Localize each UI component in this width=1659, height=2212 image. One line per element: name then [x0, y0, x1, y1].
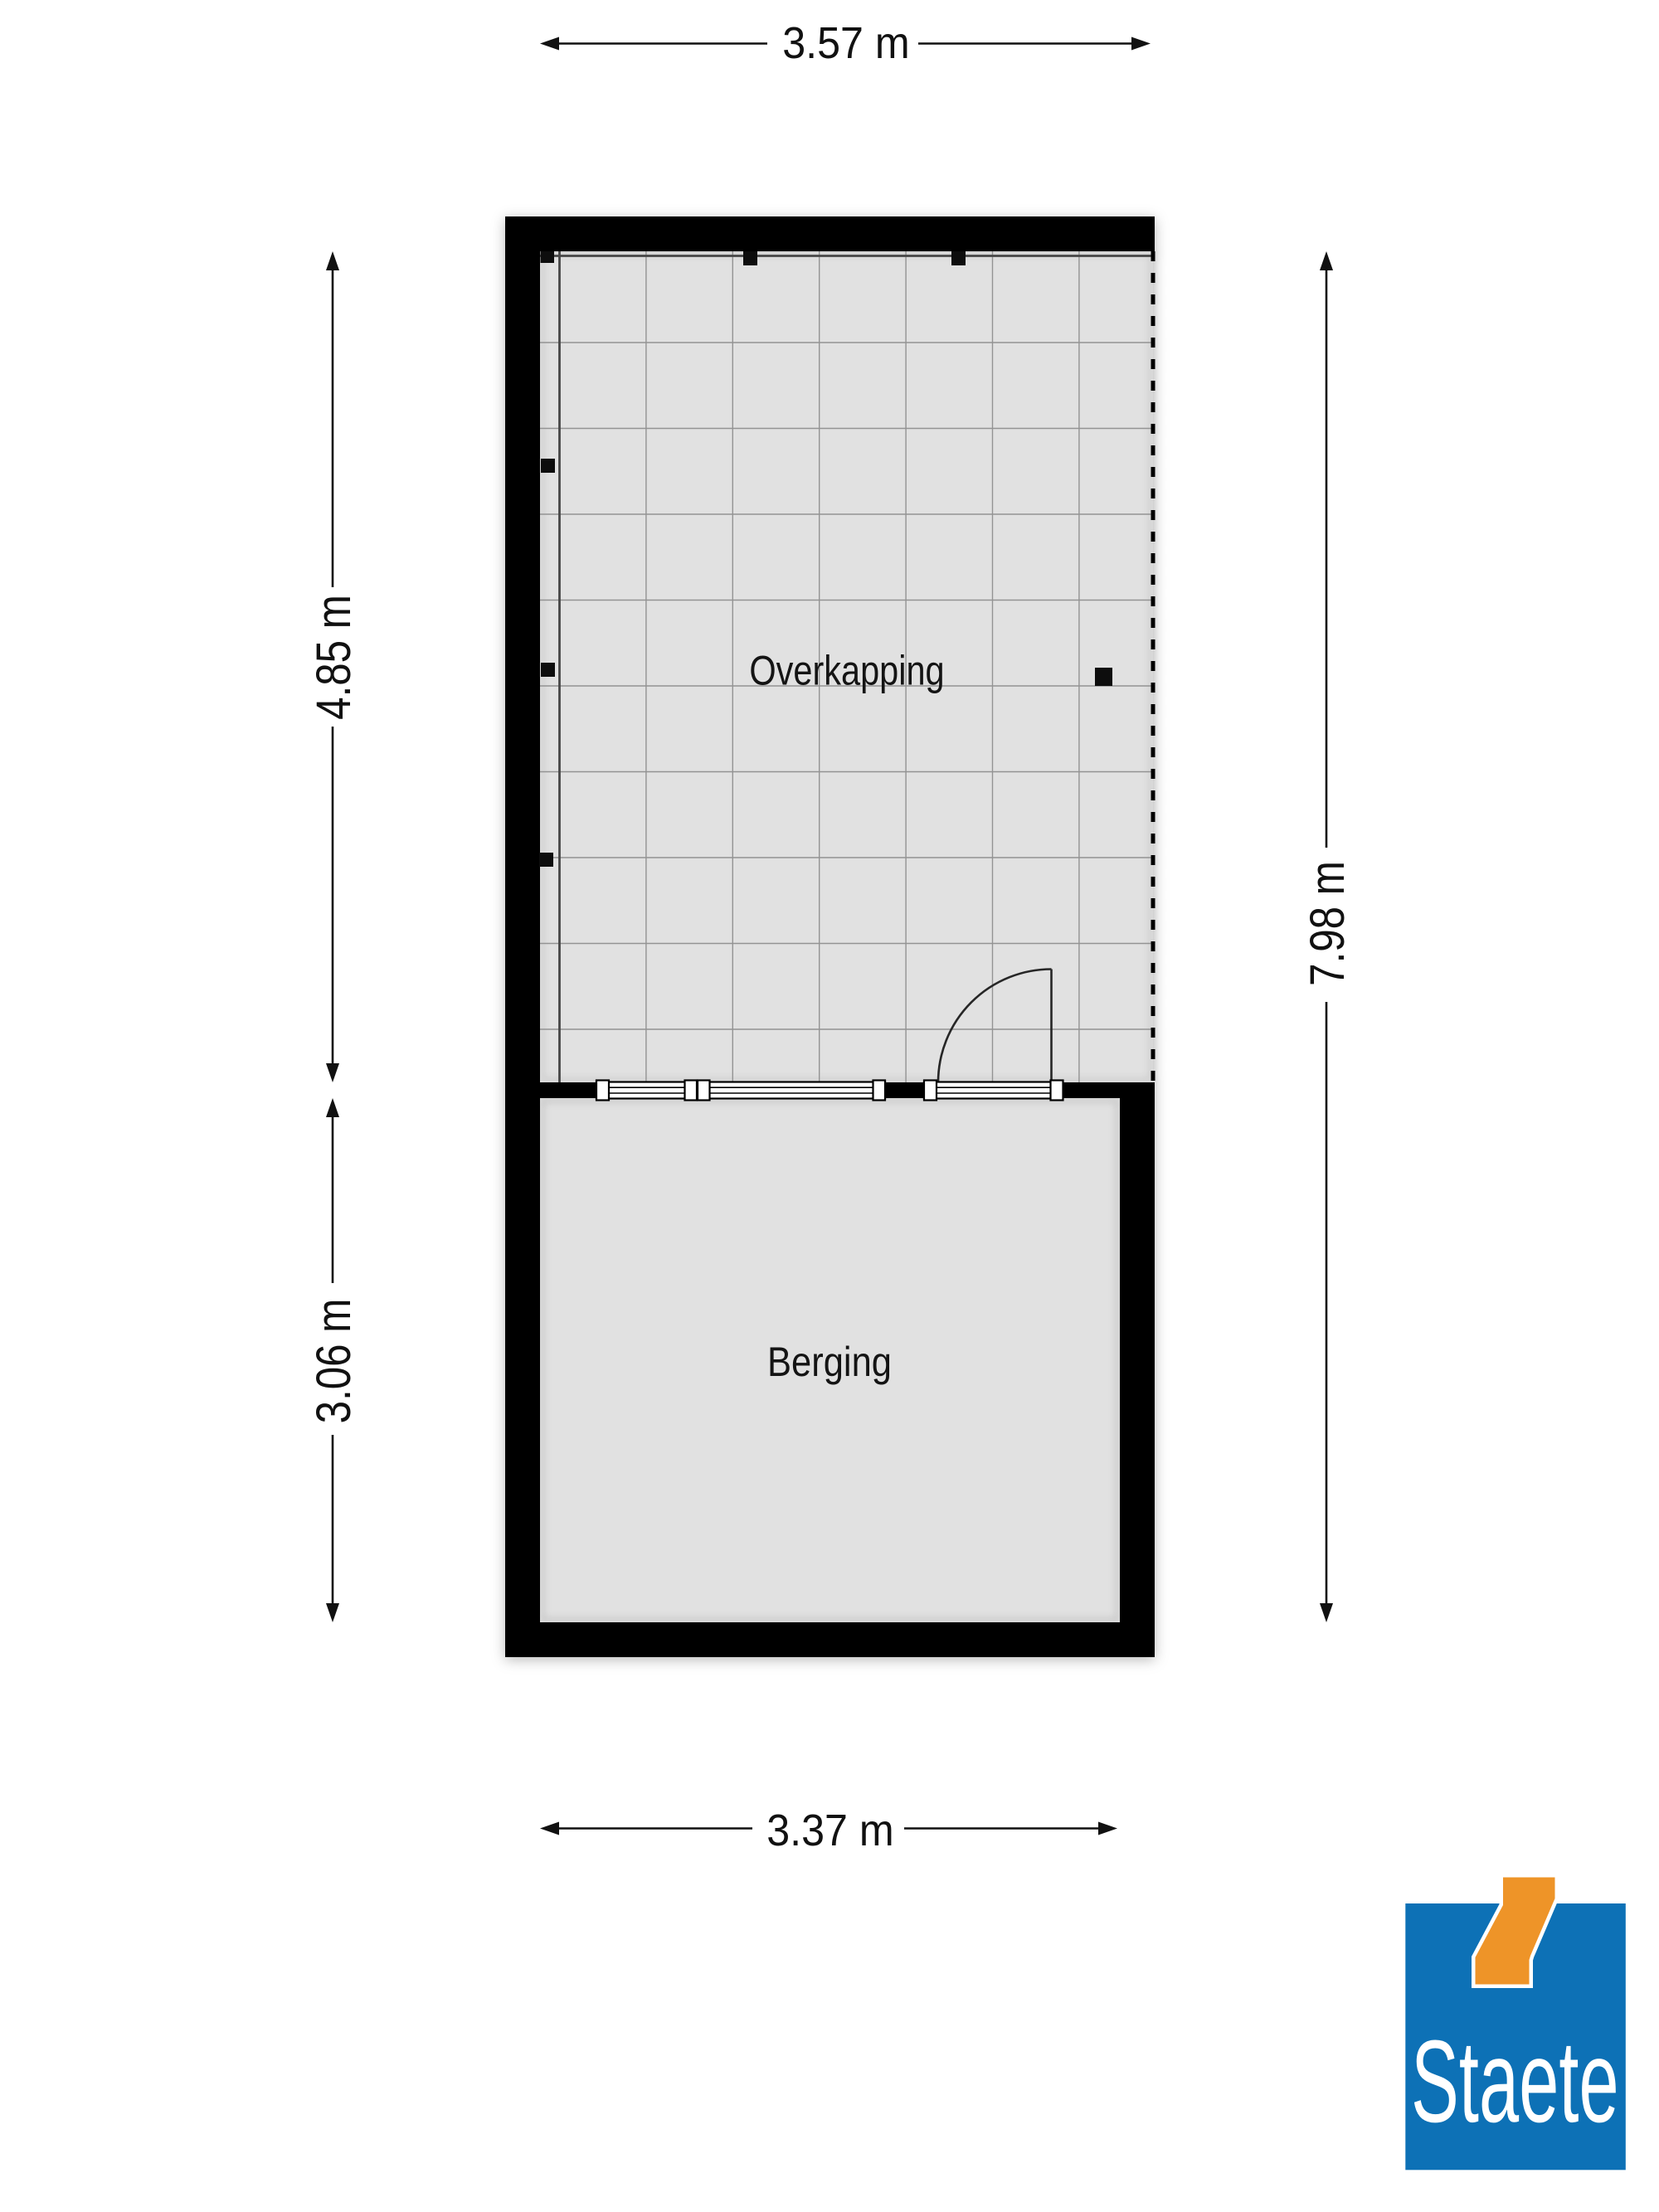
svg-text:4.85 m: 4.85 m [307, 595, 361, 720]
svg-text:3.57 m: 3.57 m [782, 18, 909, 68]
svg-text:Berging: Berging [767, 1339, 892, 1384]
svg-text:7.98 m: 7.98 m [1301, 861, 1355, 986]
svg-text:Staete: Staete [1411, 2015, 1619, 2146]
svg-text:3.06 m: 3.06 m [307, 1299, 361, 1424]
svg-text:3.37 m: 3.37 m [766, 1806, 893, 1855]
svg-text:Overkapping: Overkapping [749, 647, 944, 694]
